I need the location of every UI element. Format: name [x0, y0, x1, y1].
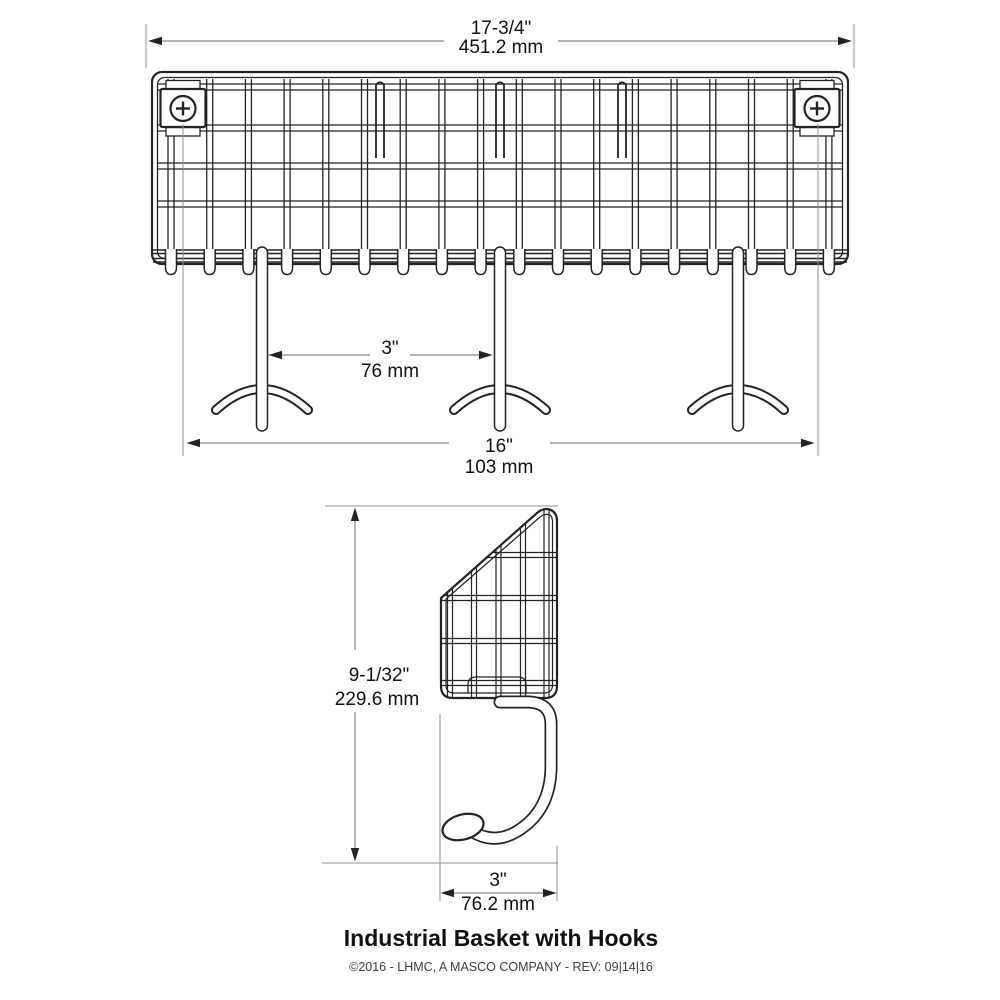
mount-spacing-inches-label: 16" — [485, 436, 513, 457]
arrowhead-right — [801, 439, 815, 447]
technical-drawing-canvas: 17-3/4" 451.2 mm 3" 76 mm 16" 103 mm 9-1… — [0, 0, 1000, 1000]
overall-height-inches-label: 9-1/32" — [349, 665, 410, 686]
dimension-overall-width: 17-3/4" 451.2 mm — [146, 18, 854, 68]
technical-drawing-page: 17-3/4" 451.2 mm 3" 76 mm 16" 103 mm 9-1… — [0, 0, 1000, 1000]
arrowhead-down — [351, 848, 359, 862]
arrowhead-left — [148, 37, 162, 45]
front-view-basket — [152, 72, 848, 431]
arrowhead-left — [269, 351, 283, 359]
basket-outer-rim — [152, 72, 848, 264]
side-view-profile — [439, 505, 557, 845]
hook-spacing-mm-label: 76 mm — [361, 361, 419, 382]
overall-height-mm-label: 229.6 mm — [335, 689, 419, 710]
plate-tab-top — [800, 81, 834, 90]
side-basket-outline — [441, 509, 557, 698]
hook-depth-inches-label: 3" — [489, 870, 506, 891]
mount-spacing-mm-label: 103 mm — [465, 457, 534, 478]
overall-width-inches-label: 17-3/4" — [471, 18, 532, 39]
hook-spacing-inches-label: 3" — [381, 338, 398, 359]
plate-tab-top — [166, 81, 200, 90]
arrowhead-right — [838, 37, 852, 45]
arrowhead-up — [351, 508, 359, 522]
coat-hooks — [216, 247, 784, 431]
plate-tab-bottom — [800, 128, 834, 137]
overall-width-mm-label: 451.2 mm — [459, 37, 543, 58]
copyright-revision-note: ©2016 - LHMC, A MASCO COMPANY - REV: 09|… — [349, 960, 653, 974]
dimension-hook-spacing: 3" 76 mm — [268, 338, 493, 382]
hook-depth-mm-label: 76.2 mm — [461, 894, 535, 915]
phillips-screw-icon-left — [171, 96, 196, 121]
arrowhead-right — [479, 351, 493, 359]
arrowhead-left — [187, 439, 201, 447]
drawing-title: Industrial Basket with Hooks — [344, 925, 658, 951]
arrowhead-left — [441, 889, 455, 897]
phillips-screw-icon-right — [805, 96, 830, 121]
mounting-plate-right — [795, 81, 840, 137]
arrowhead-right — [543, 889, 557, 897]
